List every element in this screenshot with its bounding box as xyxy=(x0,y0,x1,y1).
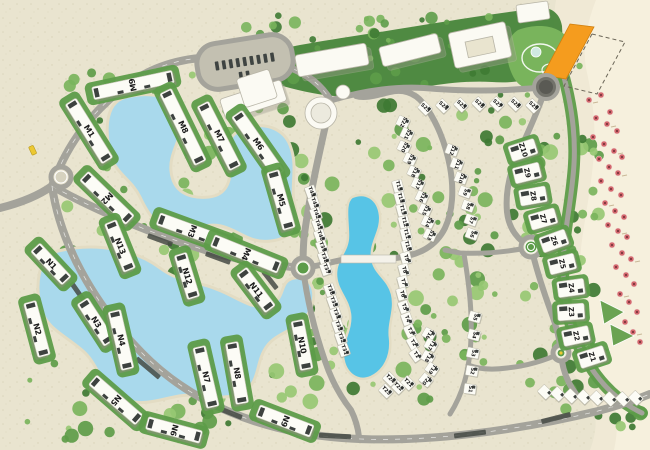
tree xyxy=(447,296,458,307)
tree xyxy=(485,13,493,21)
tree xyxy=(416,137,431,152)
tree xyxy=(431,313,437,319)
tree xyxy=(418,228,425,235)
tree xyxy=(499,116,512,129)
tree xyxy=(309,36,316,43)
tree xyxy=(78,421,93,436)
tree xyxy=(444,20,449,25)
tree xyxy=(417,384,423,390)
tree xyxy=(309,375,325,391)
roundabout-dark xyxy=(534,75,558,99)
tree xyxy=(543,144,559,160)
beach-umbrella-icon xyxy=(598,92,604,98)
tree xyxy=(409,204,418,213)
roof-detail xyxy=(578,313,583,317)
tree xyxy=(590,148,598,156)
beach-umbrella-icon xyxy=(612,208,618,214)
tree xyxy=(65,429,79,443)
tree xyxy=(301,174,308,181)
tree xyxy=(442,334,451,343)
tree xyxy=(386,38,391,43)
beach-umbrella-icon xyxy=(621,214,627,220)
tree xyxy=(475,272,481,278)
tree xyxy=(525,378,535,388)
beach-umbrella-icon xyxy=(608,186,614,192)
chalet-S2[interactable]: S2 xyxy=(465,365,480,378)
beach-umbrella-icon xyxy=(596,156,602,162)
tree xyxy=(285,385,297,397)
lagoon-bridge xyxy=(341,255,396,263)
roof-detail xyxy=(540,196,546,201)
roundabout-ring xyxy=(51,167,71,187)
tree xyxy=(520,291,531,302)
tree xyxy=(316,277,324,285)
villa-label: Z3 xyxy=(567,307,576,318)
tree xyxy=(482,335,487,340)
chalet-S1[interactable]: S1 xyxy=(463,383,477,396)
tree xyxy=(629,424,636,431)
roundabout-green xyxy=(293,258,313,278)
beach-umbrella-icon xyxy=(605,222,611,228)
tree xyxy=(364,16,375,27)
tree xyxy=(64,80,76,92)
garden-pond xyxy=(531,47,541,57)
tree xyxy=(104,427,114,437)
tree xyxy=(347,382,360,395)
beach-umbrella-icon xyxy=(601,141,607,147)
tree xyxy=(25,419,31,425)
tree xyxy=(419,17,424,22)
beach-umbrella-icon xyxy=(614,128,620,134)
tree xyxy=(303,394,319,410)
tree xyxy=(87,68,96,77)
tree xyxy=(490,231,498,239)
tree xyxy=(435,220,440,225)
tree xyxy=(478,192,493,207)
tree xyxy=(383,98,397,112)
beach-umbrella-icon xyxy=(607,109,613,115)
tree xyxy=(454,220,463,229)
beach-umbrella-icon xyxy=(619,154,625,160)
tree xyxy=(120,186,127,193)
beach-umbrella-icon xyxy=(622,319,628,325)
beach-umbrella-icon xyxy=(624,234,630,240)
tree xyxy=(392,134,397,139)
tree xyxy=(283,115,296,128)
beach-umbrella-icon xyxy=(623,272,629,278)
tree xyxy=(578,210,587,219)
tree xyxy=(525,92,530,97)
tree xyxy=(356,139,362,145)
beach-umbrella-icon xyxy=(606,164,612,170)
tree xyxy=(368,147,381,160)
tree xyxy=(420,304,431,315)
tree xyxy=(289,16,301,28)
tree xyxy=(396,362,412,378)
beach-umbrella-icon xyxy=(619,250,625,256)
master-plan-map: M9M1M8M7M6M2M5M3M4N13N1N12N11N2N3N4N10N5… xyxy=(0,0,650,450)
tree xyxy=(241,22,252,33)
tree xyxy=(189,72,196,79)
beach-umbrella-icon xyxy=(637,339,643,345)
tree xyxy=(589,187,598,196)
tree xyxy=(484,139,492,147)
tree xyxy=(97,117,104,124)
tree xyxy=(269,22,277,30)
tree xyxy=(576,63,582,69)
tree xyxy=(391,222,397,228)
tree xyxy=(469,70,476,77)
beach-umbrella-icon xyxy=(631,281,637,287)
villa-label: Z4 xyxy=(566,283,575,294)
tree xyxy=(519,118,526,125)
tree xyxy=(417,393,430,406)
beach-umbrella-icon xyxy=(618,192,624,198)
tree xyxy=(432,191,444,203)
tree xyxy=(369,28,379,38)
tree xyxy=(553,133,560,140)
tree xyxy=(530,282,538,290)
tree xyxy=(474,178,479,183)
beach-umbrella-icon xyxy=(613,264,619,270)
tree xyxy=(590,213,598,221)
tree xyxy=(574,226,581,233)
roof-detail xyxy=(578,288,584,293)
beach-umbrella-icon xyxy=(634,309,640,315)
tree xyxy=(325,177,340,192)
tree xyxy=(294,154,308,168)
tree xyxy=(61,200,73,212)
tree xyxy=(475,168,482,175)
tree xyxy=(495,135,504,144)
tree xyxy=(383,160,395,172)
tree xyxy=(616,421,626,431)
villa-Z3[interactable]: Z3 xyxy=(552,299,591,326)
tree xyxy=(72,401,87,416)
tree xyxy=(329,347,338,356)
tree xyxy=(268,363,284,379)
beach-umbrella-icon xyxy=(609,242,615,248)
villa-Z4[interactable]: Z4 xyxy=(551,274,591,303)
tree xyxy=(159,245,169,255)
tree xyxy=(275,12,282,19)
tree xyxy=(225,420,231,426)
tree xyxy=(480,358,488,366)
tree xyxy=(370,72,382,84)
tree xyxy=(433,268,445,280)
tree xyxy=(381,19,389,27)
tree xyxy=(408,290,424,306)
tree xyxy=(425,12,437,24)
tree xyxy=(356,25,364,33)
tree xyxy=(314,45,320,51)
beach-umbrella-icon xyxy=(598,178,604,184)
tree xyxy=(492,291,498,297)
tree xyxy=(27,378,32,383)
roof-detail xyxy=(559,306,567,311)
tree xyxy=(414,320,422,328)
beach-umbrella-icon xyxy=(593,115,599,121)
beach-umbrella-icon xyxy=(626,299,632,305)
chalet-label: S1 xyxy=(466,385,473,393)
tree xyxy=(178,178,189,189)
tree xyxy=(370,382,375,387)
beach-umbrella-icon xyxy=(590,134,596,140)
